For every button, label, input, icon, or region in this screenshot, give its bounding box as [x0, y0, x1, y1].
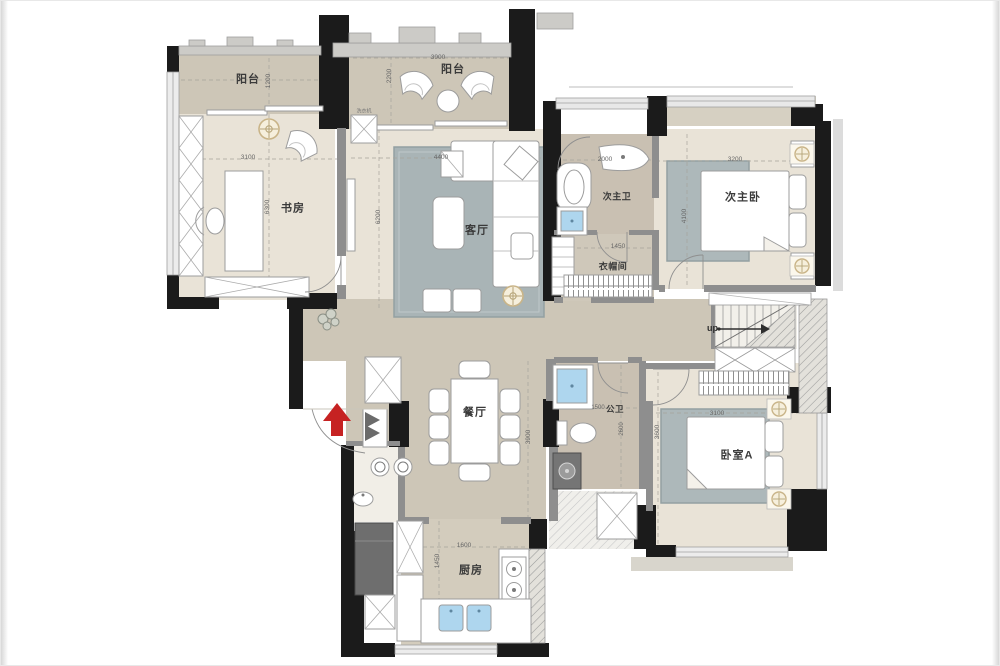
floor-plan-page: 阳台 1200 3900 阳台 2200 洗衣机 3100 书房 6300 44… — [0, 0, 1000, 666]
balcony-top-dim-depth: 2200 — [387, 69, 394, 83]
kitchen-dim-depth: 1450 — [435, 554, 442, 568]
bedroom-second-dim-width: 3200 — [728, 157, 742, 164]
bath-second-label: 次主卫 — [603, 193, 632, 202]
kitchen-dim-width: 1600 — [457, 543, 471, 550]
study-dim-depth: 6300 — [265, 200, 272, 214]
study-dim-width: 3100 — [241, 155, 255, 162]
bath-public-dim-width: 1500 — [591, 405, 604, 411]
bedroom-second-label: 次主卧 — [725, 193, 761, 204]
closet-dim-width: 1450 — [611, 244, 625, 251]
bath-second-dim-width: 2000 — [598, 157, 612, 164]
bath-public-label: 公卫 — [606, 405, 624, 414]
floor-plan-drawing — [1, 1, 1000, 666]
living-label: 客厅 — [465, 226, 489, 237]
balcony-left-dim: 1200 — [266, 74, 273, 88]
closet-label: 衣帽间 — [599, 263, 628, 272]
bath-public-dim-depth: 2600 — [619, 422, 625, 435]
bedroom-second-dim-depth: 4100 — [682, 209, 689, 223]
bedroom-a-dim-width: 3100 — [710, 411, 724, 418]
balcony-top-label: 阳台 — [441, 65, 465, 76]
bedroom-a-label: 卧室A — [721, 451, 754, 462]
stairs-up-label: up — [707, 323, 718, 333]
bedroom-a-dim-depth: 3600 — [655, 425, 662, 439]
study-label: 书房 — [281, 204, 305, 215]
dining-dim-depth: 3900 — [526, 430, 533, 444]
dining-label: 餐厅 — [463, 408, 487, 419]
living-dim-depth: 6200 — [376, 210, 383, 224]
washer-note: 洗衣机 — [356, 110, 371, 115]
kitchen-label: 厨房 — [459, 566, 483, 577]
balcony-left-label: 阳台 — [236, 75, 260, 86]
balcony-top-dim-width: 3900 — [431, 55, 445, 62]
living-dim-width: 4400 — [434, 155, 448, 162]
